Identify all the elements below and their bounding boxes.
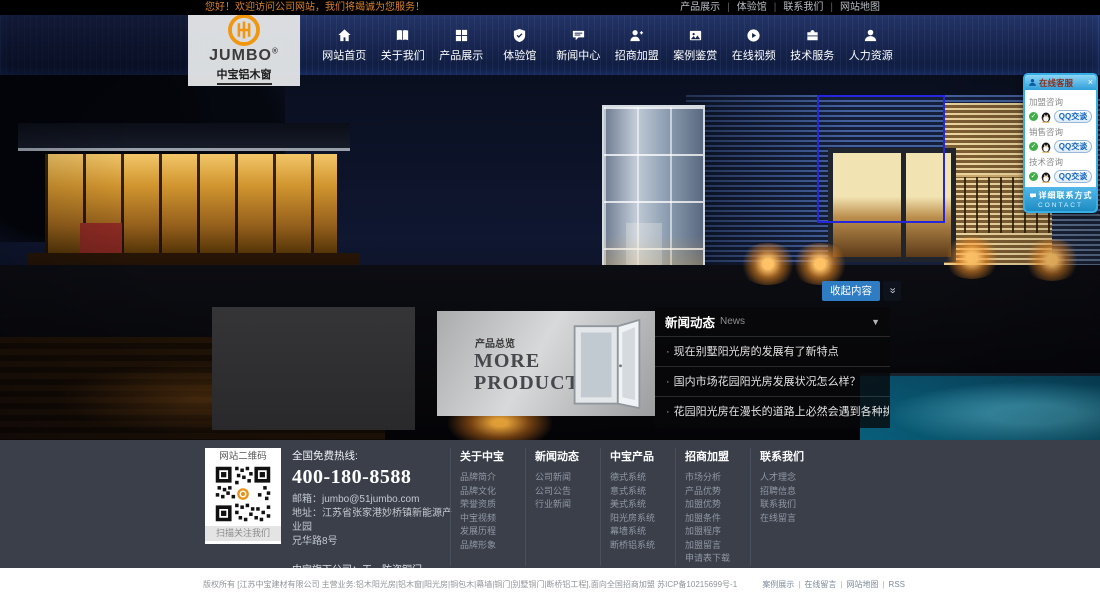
qq-chat-button[interactable]: QQ交谈 xyxy=(1054,170,1092,183)
navbar-left-shade xyxy=(0,15,190,75)
nav-item-label: 技术服务 xyxy=(790,47,834,63)
bottom-links: 案例展示在线留言网站地图RSS xyxy=(762,568,905,601)
qq-penguin-icon xyxy=(1040,141,1052,153)
footer-column-title: 中宝产品 xyxy=(610,448,675,464)
footer-link[interactable]: 联系我们 xyxy=(760,498,825,512)
topbar-link[interactable]: 联系我们 xyxy=(767,2,824,13)
footer-link[interactable]: 公司新闻 xyxy=(535,471,600,485)
collapse-toggle-icon[interactable]: » xyxy=(883,281,901,301)
footer-column-title: 新闻动态 xyxy=(535,448,600,464)
chat-icon xyxy=(571,28,586,43)
online-status-icon: ✓ xyxy=(1029,112,1038,121)
site-logo[interactable]: JUMBO® 中宝铝木窗 xyxy=(188,8,300,86)
book-icon xyxy=(395,28,410,43)
qr-box: 网站二维码 扫描关注我们 xyxy=(205,448,281,544)
footer-link[interactable]: 中宝视频 xyxy=(460,512,525,526)
footer-column-links: 品牌简介品牌文化荣誉资质中宝视频发展历程品牌形象 xyxy=(460,471,525,552)
nav-item-label: 体验馆 xyxy=(503,47,536,63)
qq-group-label: 销售咨询 xyxy=(1029,126,1092,138)
news-subtitle: News xyxy=(720,316,745,327)
qq-group: 技术咨询 ✓ QQ交谈 xyxy=(1029,156,1092,183)
footer-link[interactable]: 加盟程序 xyxy=(685,525,750,539)
nav-item[interactable]: 网站首页 xyxy=(315,15,374,75)
footer-column-title: 联系我们 xyxy=(760,448,825,464)
shield-icon xyxy=(512,28,527,43)
topbar-link[interactable]: 网站地图 xyxy=(823,2,880,13)
collapse-content-button[interactable]: 收起内容 xyxy=(822,281,880,301)
footer-column-links: 人才理念招聘信息联系我们在线留言 xyxy=(760,471,825,525)
photo-icon xyxy=(688,28,703,43)
play-icon xyxy=(746,28,761,43)
hotline-label: 全国免费热线: xyxy=(292,448,454,463)
qq-row: ✓ QQ交谈 xyxy=(1029,110,1092,123)
footer-column-title: 招商加盟 xyxy=(685,448,750,464)
nav-item[interactable]: 技术服务 xyxy=(783,15,842,75)
qr-title: 网站二维码 xyxy=(205,448,281,465)
nav-item[interactable]: 新闻中心 xyxy=(549,15,608,75)
page: 您好！欢迎访问公司网站，我们将竭诚为您服务！ 产品展示体验馆联系我们网站地图 网… xyxy=(0,0,1100,601)
nav-item-label: 人力资源 xyxy=(849,47,893,63)
footer-column-title: 关于中宝 xyxy=(460,448,525,464)
footer-column-links: 德式系统意式系统美式系统阳光房系统幕墙系统断桥铝系统 xyxy=(610,471,675,552)
qq-widget-body: 加盟咨询 ✓ QQ交谈 销售咨询 ✓ QQ交谈 xyxy=(1025,90,1096,187)
contact-details-button[interactable]: 详细联系方式 CONTACT xyxy=(1025,187,1096,211)
grid-icon xyxy=(454,28,469,43)
contact-details-label: 详细联系方式 xyxy=(1039,190,1093,201)
qq-widget-title: 在线客服 xyxy=(1039,77,1073,89)
qq-group-label: 技术咨询 xyxy=(1029,156,1092,168)
footer-link[interactable]: 人才理念 xyxy=(760,471,825,485)
footer-address-line2: 兄华路8号 xyxy=(292,535,454,549)
bottom-link[interactable]: 案例展示 xyxy=(762,580,794,589)
qq-group-label: 加盟咨询 xyxy=(1029,96,1092,108)
footer-link[interactable]: 加盟条件 xyxy=(685,512,750,526)
footer-link[interactable]: 市场分析 xyxy=(685,471,750,485)
online-status-icon: ✓ xyxy=(1029,172,1038,181)
user-icon xyxy=(863,28,878,43)
bottom-bar: 版权所有 [江苏中宝建材有限公司 主营业务:铝木阳光房|铝木窗|阳光房|铜包木|… xyxy=(0,568,1100,601)
footer-link[interactable]: 断桥铝系统 xyxy=(610,539,675,553)
news-list: 现在别墅阳光房的发展有了新特点国内市场花园阳光房发展状况怎么样？花园阳光房在漫长… xyxy=(655,336,890,426)
footer-link[interactable]: 发展历程 xyxy=(460,525,525,539)
footer-link[interactable]: 产品优势 xyxy=(685,485,750,499)
footer-link[interactable]: 申请表下载 xyxy=(685,552,750,566)
topbar-link[interactable]: 体验馆 xyxy=(720,2,767,13)
footer-link[interactable]: 品牌形象 xyxy=(460,539,525,553)
footer-column: 中宝产品 德式系统意式系统美式系统阳光房系统幕墙系统断桥铝系统 xyxy=(600,448,675,566)
person-icon xyxy=(1028,78,1037,87)
bottom-link[interactable]: RSS xyxy=(878,580,905,589)
topbar: 您好！欢迎访问公司网站，我们将竭诚为您服务！ 产品展示体验馆联系我们网站地图 xyxy=(0,0,1100,15)
logo-subtitle: 中宝铝木窗 xyxy=(217,66,272,85)
news-list-item[interactable]: 现在别墅阳光房的发展有了新特点 xyxy=(655,336,890,366)
jumbo-emblem-icon xyxy=(227,13,261,47)
nav-item-label: 案例鉴赏 xyxy=(673,47,717,63)
nav-item[interactable]: 案例鉴赏 xyxy=(666,15,725,75)
qq-group: 销售咨询 ✓ QQ交谈 xyxy=(1029,126,1092,153)
footer-link[interactable]: 招聘信息 xyxy=(760,485,825,499)
close-icon[interactable]: × xyxy=(1088,78,1093,87)
nav-item-label: 关于我们 xyxy=(381,47,425,63)
news-list-item[interactable]: 花园阳光房在漫长的道路上必然会遇到各种挑战 xyxy=(655,396,890,426)
products-overview-label: 产品总览 xyxy=(475,335,515,350)
footer-link[interactable]: 加盟优势 xyxy=(685,498,750,512)
qr-caption: 扫描关注我们 xyxy=(205,526,281,541)
nav-item-label: 招商加盟 xyxy=(615,47,659,63)
home-icon xyxy=(337,28,352,43)
footer-contact-info: 全国免费热线: 400-180-8588 邮箱：jumbo@51jumbo.co… xyxy=(292,448,454,576)
hotline-number: 400-180-8588 xyxy=(292,466,454,489)
news-title: 新闻动态 xyxy=(665,312,715,331)
footer-link[interactable]: 在线留言 xyxy=(760,512,825,526)
logo-brand: JUMBO® xyxy=(209,47,279,65)
footer-link[interactable]: 品牌简介 xyxy=(460,471,525,485)
nav-item[interactable]: 在线视频 xyxy=(725,15,784,75)
bottom-link[interactable]: 在线留言 xyxy=(794,580,836,589)
chat-bubble-icon xyxy=(1029,192,1037,200)
more-products-panel[interactable]: 产品总览 MORE PRODUCTS xyxy=(437,311,655,416)
footer-link[interactable]: 幕墙系统 xyxy=(610,525,675,539)
news-panel-header: 新闻动态 News ▼ xyxy=(655,307,890,336)
footer-column: 关于中宝 品牌简介品牌文化荣誉资质中宝视频发展历程品牌形象 xyxy=(450,448,525,566)
nav-item[interactable]: 人力资源 xyxy=(842,15,901,75)
welcome-message: 您好！欢迎访问公司网站，我们将竭诚为您服务！ xyxy=(205,0,425,15)
footer-column-links: 市场分析产品优势加盟优势加盟条件加盟程序加盟留言申请表下载 xyxy=(685,471,750,566)
footer-columns: 关于中宝 品牌简介品牌文化荣誉资质中宝视频发展历程品牌形象 新闻动态 公司新闻公… xyxy=(450,448,825,566)
footer-email: 邮箱：jumbo@51jumbo.com xyxy=(292,493,454,507)
qq-service-widget: 在线客服 × 加盟咨询 ✓ QQ交谈 销售咨询 ✓ xyxy=(1023,73,1098,213)
footer-column-links: 公司新闻公司公告行业新闻 xyxy=(535,471,600,512)
qq-penguin-icon xyxy=(1040,171,1052,183)
footer-link[interactable]: 荣誉资质 xyxy=(460,498,525,512)
footer-link[interactable]: 意式系统 xyxy=(610,485,675,499)
nav-item-label: 网站首页 xyxy=(322,47,366,63)
news-list-item[interactable]: 国内市场花园阳光房发展状况怎么样？ xyxy=(655,366,890,396)
briefcase-icon xyxy=(805,28,820,43)
qq-widget-header: 在线客服 × xyxy=(1025,75,1096,90)
nav-item[interactable]: 体验馆 xyxy=(491,15,550,75)
nav-item[interactable]: 关于我们 xyxy=(374,15,433,75)
window-product-icon xyxy=(571,319,643,409)
nav-item[interactable]: 招商加盟 xyxy=(608,15,667,75)
footer-link[interactable]: 德式系统 xyxy=(610,471,675,485)
chevron-down-icon[interactable]: ▼ xyxy=(871,317,880,327)
user-plus-icon xyxy=(629,28,644,43)
footer-column: 新闻动态 公司新闻公司公告行业新闻 xyxy=(525,448,600,566)
nav-item-label: 在线视频 xyxy=(732,47,776,63)
footer-link[interactable]: 品牌文化 xyxy=(460,485,525,499)
footer-link[interactable]: 公司公告 xyxy=(535,485,600,499)
footer-column: 联系我们 人才理念招聘信息联系我们在线留言 xyxy=(750,448,825,566)
qq-row: ✓ QQ交谈 xyxy=(1029,170,1092,183)
qq-group: 加盟咨询 ✓ QQ交谈 xyxy=(1029,96,1092,123)
qq-penguin-icon xyxy=(1040,111,1052,123)
main-nav: 网站首页 关于我们 产品展示 体验馆 新闻中心 xyxy=(315,15,900,75)
topbar-link[interactable]: 产品展示 xyxy=(680,2,720,13)
footer-column: 招商加盟 市场分析产品优势加盟优势加盟条件加盟程序加盟留言申请表下载 xyxy=(675,448,750,566)
footer-link[interactable]: 行业新闻 xyxy=(535,498,600,512)
footer-link[interactable]: 加盟留言 xyxy=(685,539,750,553)
topbar-links: 产品展示体验馆联系我们网站地图 xyxy=(680,0,880,15)
hero-highlight-rectangle xyxy=(817,95,945,223)
footer-link[interactable]: 阳光房系统 xyxy=(610,512,675,526)
qq-chat-button[interactable]: QQ交谈 xyxy=(1054,110,1092,123)
nav-item[interactable]: 产品展示 xyxy=(432,15,491,75)
bottom-link[interactable]: 网站地图 xyxy=(836,580,878,589)
qq-chat-button[interactable]: QQ交谈 xyxy=(1054,140,1092,153)
news-panel: 新闻动态 News ▼ 现在别墅阳光房的发展有了新特点国内市场花园阳光房发展状况… xyxy=(655,307,890,428)
copyright-text: 版权所有 [江苏中宝建材有限公司 主营业务:铝木阳光房|铝木窗|阳光房|铜包木|… xyxy=(203,568,737,601)
contact-sub-label: CONTACT xyxy=(1026,202,1095,209)
online-status-icon: ✓ xyxy=(1029,142,1038,151)
footer: 网站二维码 扫描关注我们 xyxy=(0,440,1100,568)
qq-row: ✓ QQ交谈 xyxy=(1029,140,1092,153)
footer-link[interactable]: 美式系统 xyxy=(610,498,675,512)
nav-item-label: 产品展示 xyxy=(439,47,483,63)
product-slide-dark[interactable] xyxy=(212,307,415,430)
footer-address-line1: 地址：江苏省张家港妙桥镇新能源产业园 xyxy=(292,507,454,535)
nav-item-label: 新闻中心 xyxy=(556,47,600,63)
qr-code xyxy=(214,465,272,523)
